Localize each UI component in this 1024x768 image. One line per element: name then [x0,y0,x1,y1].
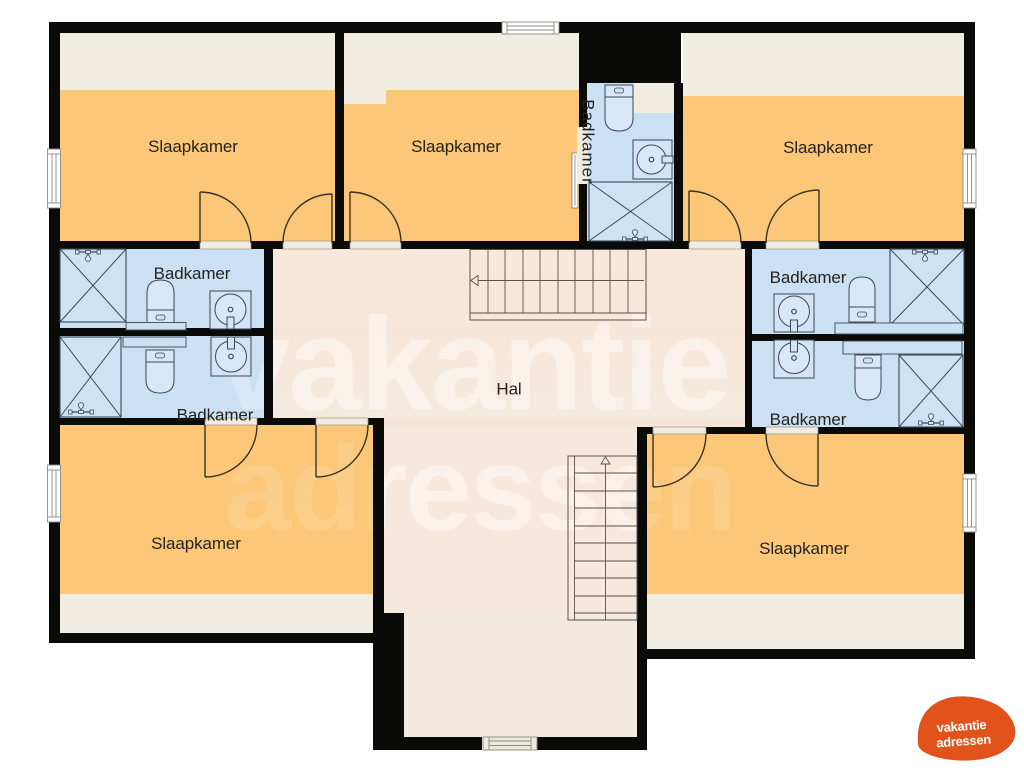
svg-text:Slaapkamer: Slaapkamer [759,539,849,558]
svg-text:Badkamer: Badkamer [770,410,847,429]
svg-text:Badkamer: Badkamer [770,268,847,287]
svg-text:Slaapkamer: Slaapkamer [148,137,238,156]
svg-text:Badkamer: Badkamer [154,264,231,283]
svg-text:Slaapkamer: Slaapkamer [411,137,501,156]
svg-text:Hal: Hal [496,380,521,399]
svg-text:Badkamer: Badkamer [177,406,254,425]
svg-text:Badkamer: Badkamer [579,99,598,184]
svg-text:Slaapkamer: Slaapkamer [783,138,873,157]
svg-text:Slaapkamer: Slaapkamer [151,534,241,553]
